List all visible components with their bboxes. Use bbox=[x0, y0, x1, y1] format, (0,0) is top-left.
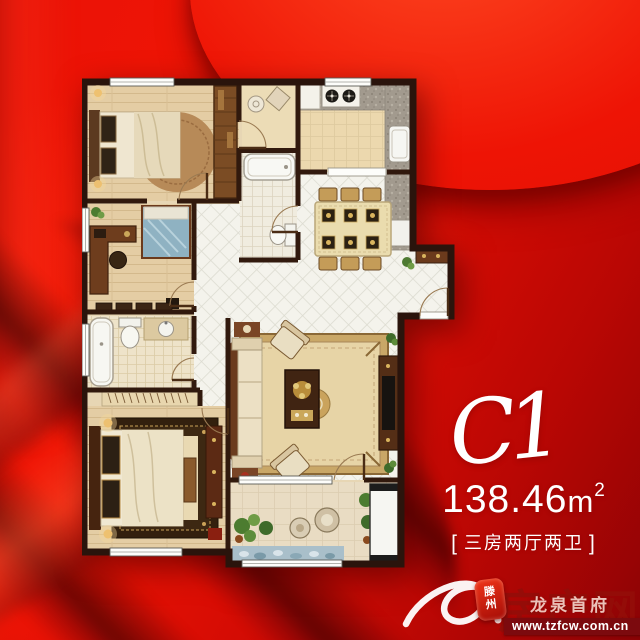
bathroom-second bbox=[84, 316, 194, 388]
bedroom-secondary bbox=[84, 82, 239, 201]
watermark-overlay-text: 龙泉首府 bbox=[530, 591, 610, 616]
logo-city-char-2: 州 bbox=[476, 597, 506, 613]
unit-spec: [三房两厅两卫] bbox=[428, 529, 620, 556]
unit-area: 138.46m2 bbox=[426, 478, 622, 522]
balcony bbox=[229, 482, 401, 564]
study-room bbox=[84, 204, 194, 311]
poster-canvas: C1 138.46m2 [三房两厅两卫] 房产网 滕 州 龙泉首府 www.tz… bbox=[0, 0, 640, 640]
floor-plan bbox=[82, 76, 456, 568]
unit-label: C1 bbox=[430, 379, 574, 481]
silk-fold-left bbox=[0, 0, 70, 440]
area-superscript: 2 bbox=[594, 480, 606, 501]
laundry-room bbox=[242, 84, 296, 150]
spec-text: 三房两厅两卫 bbox=[464, 533, 584, 553]
area-unit: m bbox=[567, 484, 594, 519]
dining-area bbox=[315, 188, 391, 270]
watermark: 房产网 滕 州 龙泉首府 www.tzfcw.com.cn bbox=[418, 574, 640, 640]
watermark-url: www.tzfcw.com.cn bbox=[504, 618, 640, 635]
living-room bbox=[230, 320, 399, 486]
area-value: 138.46 bbox=[442, 478, 567, 521]
spec-bracket-right: ] bbox=[584, 532, 602, 555]
spec-bracket-left: [ bbox=[446, 532, 464, 555]
watermark-logo-badge: 滕 州 bbox=[474, 577, 508, 621]
bathroom-main bbox=[240, 151, 297, 260]
